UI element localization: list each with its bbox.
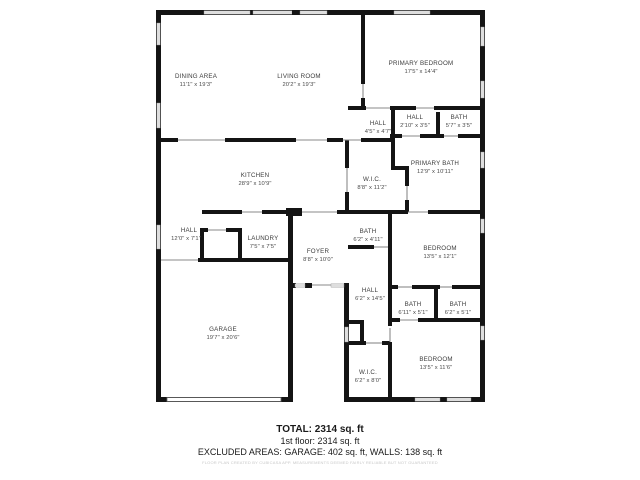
room-label-bedroom-1: BEDROOM	[423, 245, 456, 252]
room-dims-bath-low-left: 6'11" x 5'1"	[398, 310, 427, 316]
room-label-wic-1: W.I.C.	[363, 176, 381, 183]
room-label-hall-1: HALL	[370, 120, 387, 127]
room-label-wic-2: W.I.C.	[359, 369, 377, 376]
room-dims-hall-2: 2'10" x 3'5"	[400, 123, 430, 129]
room-label-bath-top: BATH	[451, 114, 468, 121]
room-dims-hall-left: 12'0" x 7'1"	[171, 236, 201, 242]
summary-block: TOTAL: 2314 sq. ft 1st floor: 2314 sq. f…	[0, 423, 640, 467]
room-label-primary-bedroom: PRIMARY BEDROOM	[389, 60, 454, 67]
room-dims-laundry: 7'5" x 7'5"	[250, 244, 276, 250]
room-labels: DINING AREA 11'1" x 19'3" LIVING ROOM 20…	[171, 60, 472, 384]
room-label-hall-low: HALL	[362, 287, 379, 294]
first-floor-text: 1st floor: 2314 sq. ft	[0, 436, 640, 447]
room-label-dining: DINING AREA	[175, 73, 218, 80]
room-dims-garage: 19'7" x 20'6"	[206, 335, 239, 341]
room-label-primary-bath: PRIMARY BATH	[411, 160, 459, 167]
room-dims-wic-1: 8'8" x 11'2"	[357, 185, 386, 191]
floor-plan-page: DINING AREA 11'1" x 19'3" LIVING ROOM 20…	[0, 0, 640, 480]
room-label-living: LIVING ROOM	[277, 73, 320, 80]
garage-door	[167, 398, 281, 402]
room-label-bedroom-2: BEDROOM	[419, 356, 452, 363]
room-label-bath-low-left: BATH	[405, 301, 422, 308]
room-dims-bath-mid: 6'2" x 4'11"	[353, 237, 382, 243]
room-dims-dining: 11'1" x 19'3"	[180, 82, 213, 88]
floor-plan: DINING AREA 11'1" x 19'3" LIVING ROOM 20…	[0, 0, 640, 480]
disclaimer-text: FLOOR PLAN CREATED BY CUBICASA APP. MEAS…	[0, 458, 640, 467]
excluded-areas-text: EXCLUDED AREAS: GARAGE: 402 sq. ft, WALL…	[0, 447, 640, 458]
total-area-text: TOTAL: 2314 sq. ft	[0, 423, 640, 436]
room-label-hall-left: HALL	[181, 227, 198, 234]
room-dims-hall-1: 4'5" x 4'7"	[365, 129, 391, 135]
room-label-bath-mid: BATH	[360, 228, 377, 235]
room-dims-bath-top: 5'7" x 3'5"	[446, 123, 472, 129]
room-dims-bedroom-1: 13'5" x 12'1"	[423, 254, 456, 260]
room-dims-bedroom-2: 13'5" x 11'6"	[420, 365, 453, 371]
room-label-kitchen: KITCHEN	[241, 172, 270, 179]
room-label-hall-2: HALL	[407, 114, 424, 121]
room-dims-primary-bath: 12'9" x 10'11"	[417, 169, 453, 175]
room-dims-wic-2: 6'2" x 8'0"	[355, 378, 381, 384]
room-label-bath-low-right: BATH	[450, 301, 467, 308]
room-dims-bath-low-right: 6'2" x 5'1"	[445, 310, 471, 316]
room-dims-kitchen: 28'9" x 10'9"	[238, 181, 271, 187]
room-label-garage: GARAGE	[209, 326, 237, 333]
room-label-laundry: LAUNDRY	[248, 235, 279, 242]
room-dims-living: 20'2" x 19'3"	[282, 82, 315, 88]
room-dims-primary-bedroom: 17'5" x 14'4"	[404, 69, 437, 75]
room-label-foyer: FOYER	[307, 248, 330, 255]
room-dims-hall-low: 6'2" x 14'5"	[355, 296, 385, 302]
room-dims-foyer: 8'8" x 10'0"	[303, 257, 333, 263]
